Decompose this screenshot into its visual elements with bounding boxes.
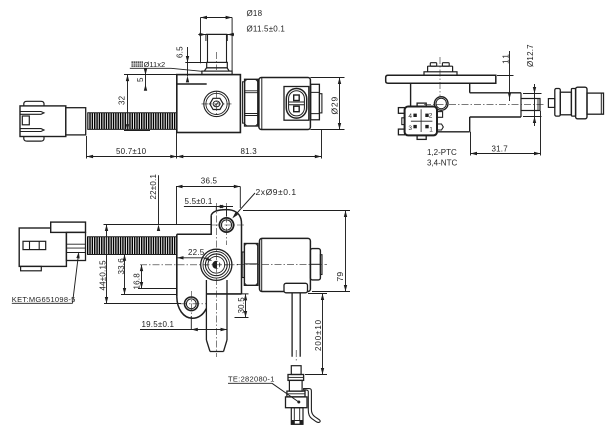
svg-text:30.5: 30.5 <box>237 297 246 314</box>
svg-text:16.8: 16.8 <box>133 273 142 290</box>
svg-text:Ø11x2: Ø11x2 <box>144 60 166 69</box>
svg-text:22.5: 22.5 <box>188 248 205 257</box>
svg-text:5.5±0.1: 5.5±0.1 <box>185 197 213 206</box>
svg-text:19.5±0.1: 19.5±0.1 <box>142 320 175 329</box>
svg-text:TE:282080-1: TE:282080-1 <box>228 375 275 384</box>
svg-text:33.6: 33.6 <box>117 258 126 275</box>
svg-text:Ø29: Ø29 <box>329 96 339 114</box>
svg-text:6.5: 6.5 <box>176 46 185 58</box>
svg-text:Ø11.5±0.1: Ø11.5±0.1 <box>247 25 286 34</box>
svg-text:200±10: 200±10 <box>314 319 323 351</box>
svg-text:3: 3 <box>408 125 412 132</box>
svg-text:81.3: 81.3 <box>241 147 258 156</box>
svg-text:KET:MG651098-5: KET:MG651098-5 <box>12 295 76 304</box>
svg-text:4: 4 <box>408 113 412 120</box>
svg-text:31.7: 31.7 <box>492 145 509 154</box>
svg-text:50.7±10: 50.7±10 <box>116 147 147 156</box>
svg-text:36.5: 36.5 <box>201 177 218 186</box>
svg-text:5: 5 <box>136 77 145 82</box>
svg-text:1: 1 <box>429 127 433 134</box>
svg-text:Ø12.7: Ø12.7 <box>526 44 535 67</box>
svg-text:Ø18: Ø18 <box>247 9 263 18</box>
svg-text:3,4-NTC: 3,4-NTC <box>427 158 457 167</box>
svg-text:2: 2 <box>429 113 433 120</box>
svg-text:1,2-PTC: 1,2-PTC <box>427 148 457 157</box>
svg-text:32: 32 <box>118 95 127 105</box>
svg-text:2xØ9±0.1: 2xØ9±0.1 <box>256 187 297 197</box>
svg-text:79: 79 <box>335 272 345 282</box>
svg-text:22±0.1: 22±0.1 <box>149 174 158 200</box>
svg-text:11: 11 <box>501 53 511 64</box>
svg-text:44±0.15: 44±0.15 <box>99 260 108 291</box>
